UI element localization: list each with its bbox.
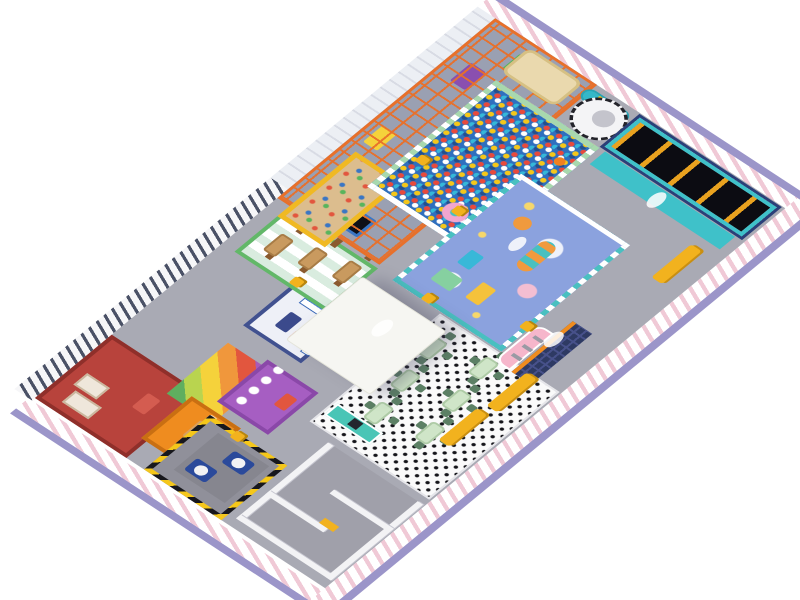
- chair: [390, 396, 403, 406]
- cash-register: [347, 418, 363, 430]
- playground-render-canvas: [0, 0, 800, 600]
- play-kitchen: [273, 393, 297, 411]
- chair: [363, 400, 376, 410]
- chair: [441, 351, 454, 361]
- wood-dining-table: [262, 233, 294, 258]
- soft-ottoman: [509, 214, 535, 233]
- cafe-table: [440, 388, 473, 413]
- wall-segment: [265, 491, 328, 533]
- chair: [466, 376, 479, 386]
- chair: [388, 388, 401, 398]
- chair: [468, 384, 481, 394]
- red-table: [132, 393, 161, 415]
- soft-mat: [363, 125, 397, 151]
- chair: [444, 331, 457, 341]
- soft-wedge: [465, 282, 497, 306]
- toddler-slide: [430, 267, 463, 291]
- chair: [415, 356, 428, 366]
- soft-block: [457, 249, 485, 270]
- chair: [442, 388, 455, 398]
- ride-car: [228, 456, 248, 471]
- turnstile-post: [521, 344, 533, 352]
- spinner-hub: [587, 107, 620, 131]
- chair: [439, 408, 452, 418]
- turnstile-post: [511, 353, 523, 361]
- floor-plan: [35, 18, 785, 588]
- chair: [387, 416, 400, 426]
- chair: [414, 383, 427, 393]
- ride-car: [191, 463, 211, 478]
- wood-dining-table: [297, 246, 329, 271]
- chair: [415, 420, 428, 430]
- chair: [442, 416, 455, 426]
- chair: [492, 371, 505, 381]
- chair: [468, 355, 481, 365]
- chair: [413, 441, 426, 451]
- big-ball: [551, 155, 567, 167]
- chair: [417, 364, 430, 374]
- cafe-table: [467, 356, 500, 381]
- soft-mat: [450, 63, 486, 91]
